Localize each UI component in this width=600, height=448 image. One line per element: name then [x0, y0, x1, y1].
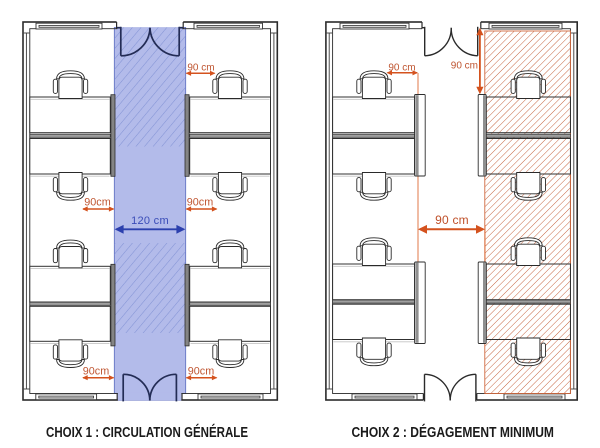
svg-text:90 cm: 90 cm: [435, 213, 469, 227]
svg-text:120 cm: 120 cm: [131, 215, 169, 227]
svg-text:90cm: 90cm: [188, 366, 214, 378]
svg-text:CHOIX 1 : CIRCULATION GÉNÉRALE: CHOIX 1 : CIRCULATION GÉNÉRALE: [46, 424, 248, 441]
svg-text:CHOIX 2 : DÉGAGEMENT MINIMUM: CHOIX 2 : DÉGAGEMENT MINIMUM: [351, 424, 554, 441]
svg-text:90cm: 90cm: [84, 197, 110, 209]
svg-text:90 cm: 90 cm: [388, 63, 415, 74]
svg-text:90 cm: 90 cm: [451, 61, 478, 72]
